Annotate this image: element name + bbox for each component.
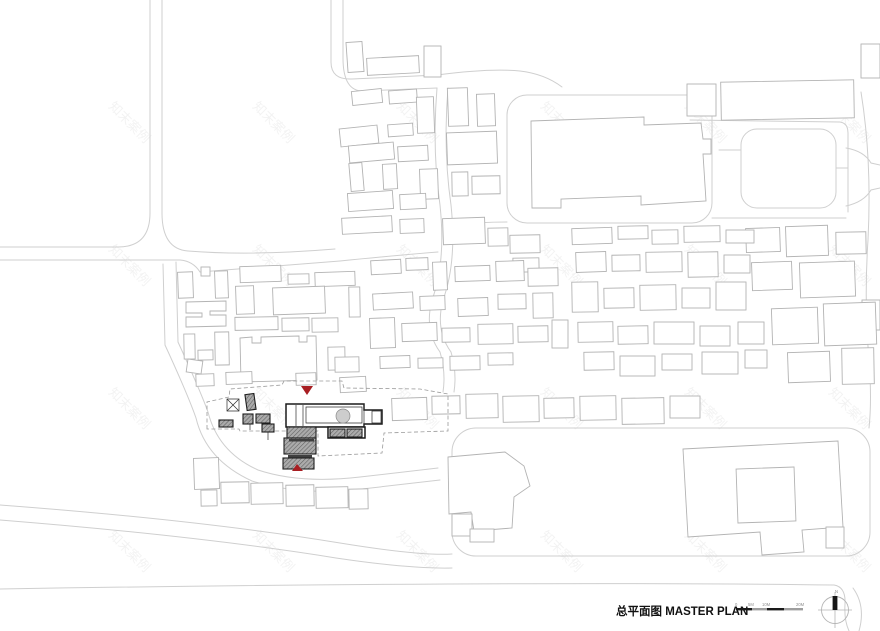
building-footprint (251, 483, 283, 505)
building-footprint (450, 356, 480, 371)
building-footprint (496, 261, 525, 282)
building-footprint (196, 374, 214, 387)
building-footprint (447, 88, 468, 127)
plan-title: 总平面图 MASTER PLAN (616, 604, 748, 618)
scale-segment (752, 608, 767, 610)
building-footprint (476, 94, 495, 127)
building-footprint (369, 318, 395, 349)
building-footprint (288, 274, 309, 284)
building-footprint (612, 255, 640, 271)
building-footprint (584, 352, 614, 371)
building-footprint (198, 350, 213, 360)
building-footprint (349, 489, 368, 509)
watermark: 知末案例 (106, 528, 153, 575)
building-footprint (646, 252, 682, 273)
scale-segment (767, 608, 784, 610)
building-footprint (470, 529, 494, 542)
scale-label-10m: 10M (762, 602, 771, 607)
building-footprint (531, 117, 711, 208)
scale-label-5m: 5M (748, 602, 754, 607)
building-footprint (184, 334, 195, 359)
building-footprint (510, 235, 540, 254)
building-footprint (580, 396, 616, 421)
building-footprint (466, 394, 498, 419)
building-footprint (640, 285, 676, 311)
building-footprint (416, 97, 434, 134)
building-footprint (349, 287, 361, 317)
scale-segment (784, 608, 803, 610)
building-footprint (400, 193, 427, 209)
building-footprint (296, 373, 316, 386)
building-footprint (406, 258, 428, 271)
building-footprint (498, 294, 526, 309)
building-footprint (215, 271, 229, 298)
site-roof-hatch (330, 429, 345, 437)
building-footprint (721, 80, 855, 120)
site-roof-hatch (219, 420, 233, 427)
road (163, 264, 165, 345)
site-roof-hatch (256, 414, 270, 423)
building-footprint (618, 226, 648, 240)
building-footprint (433, 262, 448, 290)
building-footprint (342, 216, 393, 235)
north-needle (833, 596, 838, 610)
watermark: 知末案例 (538, 528, 585, 575)
building-footprint (726, 230, 754, 243)
building-footprint (349, 162, 364, 191)
watermark: 知末案例 (106, 242, 153, 289)
building-footprint (687, 84, 716, 116)
site-main-building (286, 404, 382, 427)
building-footprint (235, 317, 278, 331)
building-footprint (340, 376, 367, 392)
building-footprint (348, 142, 394, 163)
entrance-arrow-north (301, 386, 313, 395)
building-footprint (684, 226, 720, 243)
building-footprint (620, 356, 655, 376)
scale-segment (736, 608, 752, 610)
building-footprint (688, 252, 718, 278)
building-footprint (842, 348, 875, 385)
north-label: N (835, 589, 838, 594)
building-footprint (178, 272, 194, 299)
building-footprint (478, 324, 513, 345)
building-footprint (752, 261, 793, 290)
building-footprint (380, 355, 410, 368)
building-footprint (286, 485, 314, 506)
watermark: 知末案例 (826, 385, 873, 432)
plan-geometry (0, 0, 880, 631)
building-footprint (652, 230, 678, 244)
building-footprint (347, 190, 393, 211)
building-footprint (236, 286, 255, 315)
building-footprint-layer (178, 41, 880, 555)
building-footprint (552, 320, 568, 348)
building-footprint (226, 372, 252, 385)
site-dark-bars (288, 455, 312, 458)
master-plan-canvas: 知末案例知末案例知末案例知末案例知末案例知末案例知末案例知末案例知末案例知末案例… (0, 0, 880, 631)
building-footprint (745, 350, 767, 368)
building-footprint (836, 232, 866, 255)
building-footprint (402, 322, 438, 341)
building-footprint (455, 265, 491, 281)
building-footprint (373, 292, 414, 310)
building-footprint (346, 41, 364, 72)
road (437, 70, 562, 87)
building-footprint (544, 398, 574, 419)
building-footprint (315, 271, 355, 286)
building-footprint (186, 301, 226, 327)
building-footprint (700, 326, 730, 346)
road (0, 505, 452, 554)
building-footprint (861, 44, 880, 78)
building-footprint (576, 251, 607, 272)
site-plan-drawing: 知末案例知末案例知末案例知末案例知末案例知末案例知末案例知末案例知末案例知末案例… (0, 0, 880, 631)
building-footprint (424, 46, 441, 77)
building-footprint (799, 261, 855, 298)
road (162, 0, 335, 253)
building-footprint (392, 397, 428, 420)
building-footprint (420, 296, 445, 311)
building-footprint (221, 482, 249, 503)
building-footprint (389, 89, 418, 104)
site-roof-hatch (262, 424, 274, 432)
building-footprint (193, 458, 219, 490)
road (846, 148, 880, 165)
building-footprint (787, 351, 830, 382)
building-footprint (282, 318, 309, 331)
building-footprint (654, 322, 694, 344)
building-footprint (351, 88, 382, 105)
building-footprint (215, 332, 230, 365)
building-footprint (533, 293, 553, 318)
building-footprint (452, 172, 468, 196)
annotation-block: 总平面图 MASTER PLAN 0 5M 10M 20M N (616, 589, 852, 628)
building-footprint (418, 358, 443, 368)
building-footprint (503, 396, 539, 423)
building-footprint (826, 527, 844, 548)
building-footprint (724, 255, 750, 273)
road (853, 588, 861, 631)
building-footprint (528, 268, 558, 287)
building-footprint (823, 302, 876, 346)
road (0, 260, 200, 272)
building-footprint (452, 514, 472, 536)
watermark: 知末案例 (106, 99, 153, 146)
building-footprint (367, 56, 420, 76)
building-footprint (201, 267, 210, 276)
building-footprint (316, 487, 348, 509)
building-footprint (662, 354, 692, 370)
building-footprint (670, 396, 700, 418)
site-tree-layer (336, 409, 350, 423)
site-roof-hatch (287, 427, 316, 438)
building-footprint (488, 353, 513, 365)
road (741, 129, 836, 208)
site-roof-hatch (245, 393, 256, 410)
building-footprint (785, 225, 828, 256)
building-footprint (458, 297, 489, 316)
building-footprint (604, 288, 634, 309)
building-footprint (382, 164, 397, 190)
building-footprint (572, 282, 599, 312)
building-footprint (578, 322, 613, 343)
building-footprint (472, 176, 500, 194)
building-footprint (518, 326, 548, 343)
watermark: 知末案例 (106, 385, 153, 432)
building-footprint (388, 123, 414, 137)
building-footprint (186, 359, 203, 374)
north-arrow: N (818, 589, 852, 628)
building-footprint (240, 265, 282, 282)
building-footprint (446, 131, 497, 165)
site-roof-hatch (243, 414, 253, 424)
building-footprint (771, 307, 818, 345)
site-dark-bars (289, 439, 314, 442)
building-footprint (273, 286, 326, 315)
building-footprint (618, 326, 648, 345)
building-footprint (400, 219, 424, 234)
building-footprint (738, 322, 764, 344)
building-footprint (201, 490, 217, 506)
building-footprint (716, 282, 746, 310)
building-footprint (736, 467, 796, 523)
building-footprint (572, 227, 613, 244)
road (200, 252, 438, 272)
site-roof-hatch (347, 429, 362, 437)
building-footprint (398, 145, 429, 162)
building-footprint (702, 352, 738, 374)
road (846, 188, 880, 206)
building-footprint (443, 217, 486, 244)
site-tree (336, 409, 350, 423)
scale-label-20m: 20M (796, 602, 805, 607)
building-footprint (335, 357, 359, 372)
watermark: 知末案例 (250, 99, 297, 146)
building-footprint (488, 228, 508, 246)
building-footprint (682, 288, 710, 308)
building-footprint (432, 396, 460, 414)
building-footprint (442, 328, 470, 342)
building-footprint (371, 259, 402, 275)
building-footprint (622, 398, 664, 425)
building-footprint (312, 318, 338, 332)
